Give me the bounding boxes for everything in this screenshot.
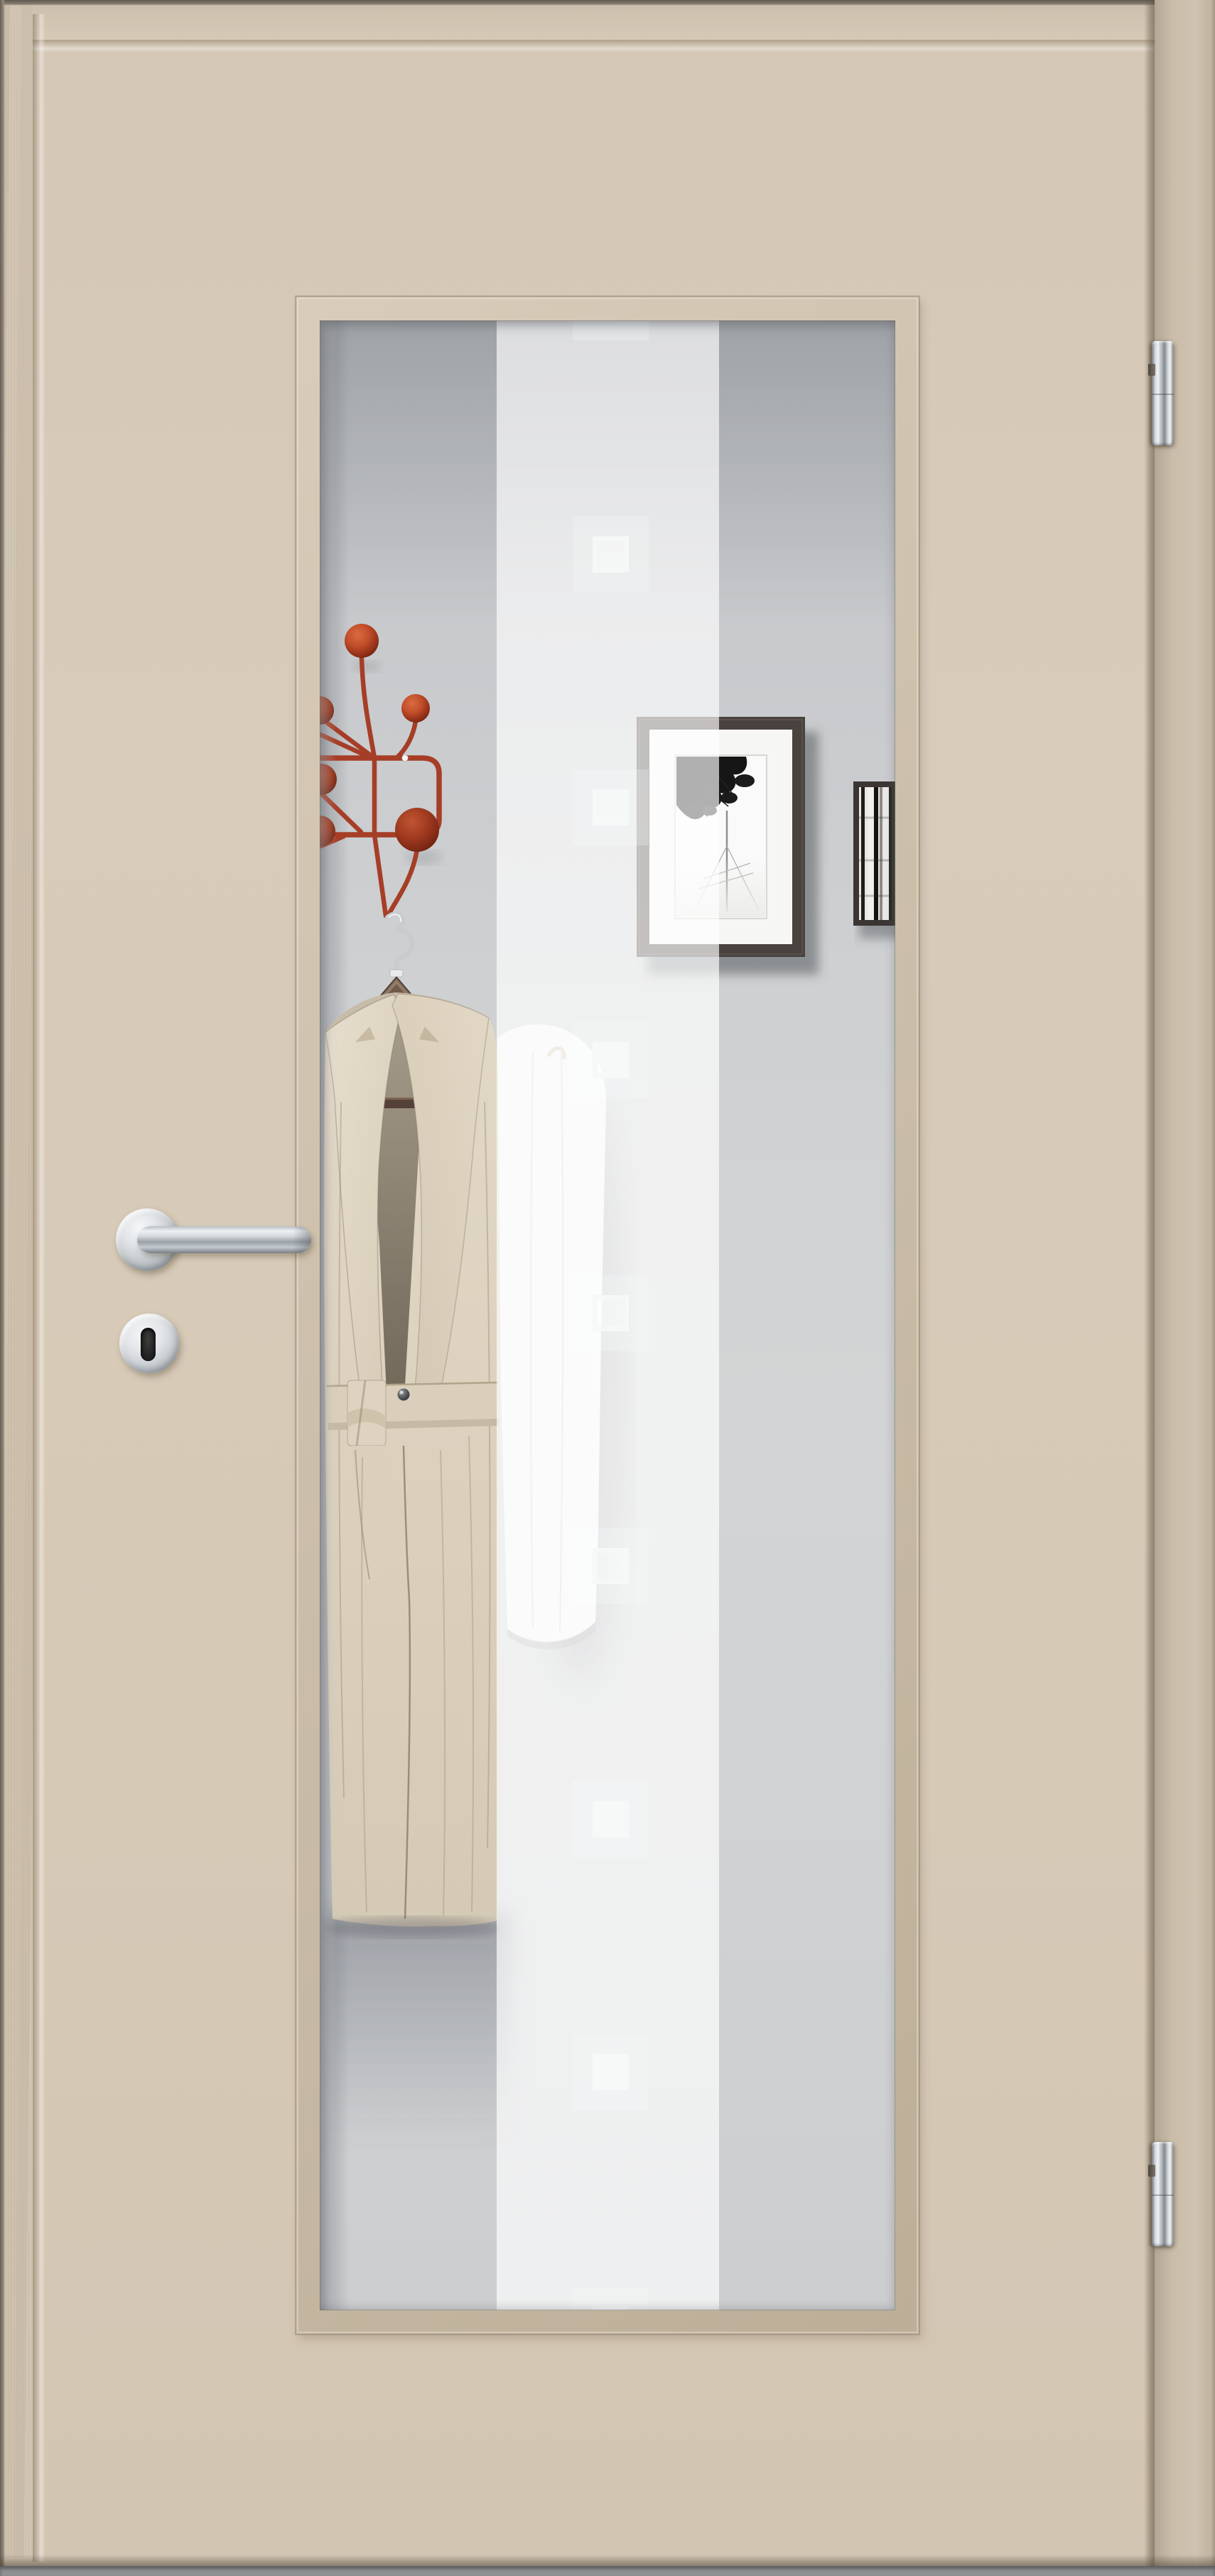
glass-square-motif: [573, 320, 649, 340]
rack-screw: [402, 755, 409, 762]
framed-photo-small: [853, 781, 895, 938]
glass-square-motif: [573, 1528, 649, 1604]
door-handle-lever: [137, 1226, 311, 1253]
motif-ring: [593, 1548, 629, 1584]
hinge-seam: [1152, 394, 1174, 395]
floor-strip: [0, 2566, 1215, 2576]
glass-square-motif: [573, 1275, 649, 1351]
hinge-seam: [1152, 2195, 1174, 2196]
glass-panel: [320, 320, 895, 2310]
door-top-rail: [0, 6, 1215, 40]
keyhole: [141, 1328, 156, 1361]
coat-wall-shadow: [320, 1912, 512, 2146]
motif-ring: [593, 2054, 629, 2090]
trench-coat: [323, 992, 501, 1937]
motif-ring: [593, 1042, 629, 1078]
motif-ring: [593, 2307, 629, 2310]
hinge-bottom: [1152, 2142, 1174, 2246]
coat-button: [398, 1389, 410, 1401]
hinge-notch: [1148, 2165, 1155, 2177]
door-left-groove: [33, 14, 45, 2562]
glass-square-motif: [573, 1781, 649, 1857]
rack-knob: [401, 694, 430, 723]
door-bottom-edge: [0, 2555, 1215, 2566]
motif-ring: [593, 1801, 629, 1837]
hook-ferrule: [390, 970, 403, 977]
bw-birch-photo: [859, 787, 892, 920]
hinge-notch: [1148, 364, 1155, 376]
coat-hem-shadow: [323, 1917, 501, 1937]
photo-top-edge: [0, 0, 1215, 6]
glass-square-motif: [573, 2287, 649, 2310]
hinge-top: [1152, 341, 1174, 445]
door-top-bevel: [0, 40, 1215, 53]
glass-square-motif: [573, 1022, 649, 1098]
glass-square-motif: [573, 516, 649, 592]
glass-square-motif: [573, 2034, 649, 2110]
door-left-edge-shadow: [0, 0, 5, 2566]
rack-knob: [345, 624, 379, 658]
motif-ring: [593, 1295, 629, 1331]
glass-square-motif: [573, 769, 649, 845]
motif-ring: [593, 789, 629, 826]
door-product-photo: [0, 0, 1215, 2576]
rack-knob: [395, 808, 439, 852]
motif-ring: [593, 536, 629, 573]
